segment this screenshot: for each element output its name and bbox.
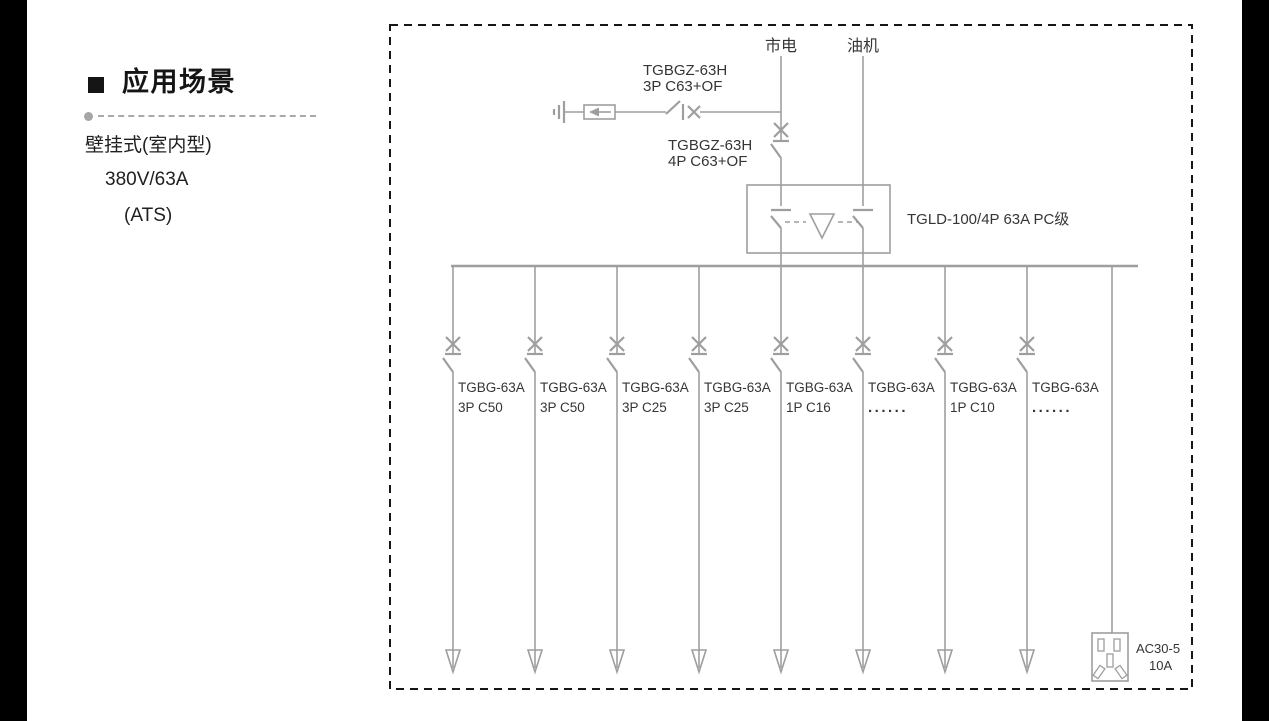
mains-feed: 市电 xyxy=(765,37,797,206)
switch-blade-icon xyxy=(666,101,680,114)
branch-model-label: TGBG-63A xyxy=(1032,380,1099,395)
surge-breaker-model-label: TGBGZ-63H xyxy=(643,62,727,79)
branch-spec-label: ...... xyxy=(1032,399,1072,416)
page: 应用场景 壁挂式(室内型) 380V/63A (ATS) 市电 油机 xyxy=(0,0,1269,721)
main-breaker-label: TGBGZ-63H 4P C63+OF xyxy=(668,137,752,170)
branch-model-label: TGBG-63A xyxy=(458,380,525,395)
branch-model-label: TGBG-63A xyxy=(786,380,853,395)
enclosure-border xyxy=(390,25,1192,689)
ats-label: TGLD-100/4P 63A PC级 xyxy=(907,211,1069,228)
feeder-branch: TGBG-63A3P C25 xyxy=(607,266,689,672)
feeder-branch: TGBG-63A3P C50 xyxy=(443,266,525,672)
branch-spec-label: 1P C10 xyxy=(950,400,995,415)
breaker-blade-icon xyxy=(771,144,781,158)
breaker-blade-icon xyxy=(607,358,617,372)
breaker-blade-icon xyxy=(853,358,863,372)
branch-model-label: TGBG-63A xyxy=(540,380,607,395)
feeder-branch: TGBG-63A...... xyxy=(1017,266,1099,672)
feeder-branch: TGBG-63A3P C25 xyxy=(689,266,771,672)
single-line-diagram: 市电 油机 xyxy=(0,0,1269,721)
socket-icon xyxy=(1092,633,1128,681)
mains-label: 市电 xyxy=(765,37,797,55)
surge-protection-branch: TGBGZ-63H 3P C63+OF xyxy=(554,62,781,123)
breaker-blade-icon xyxy=(771,358,781,372)
breaker-blade-icon xyxy=(1017,358,1027,372)
main-breaker-spec-label: 4P C63+OF xyxy=(668,153,747,170)
ats-left-blade-icon xyxy=(771,216,781,228)
ats-triangle-icon xyxy=(810,214,834,238)
branch-spec-label: 3P C25 xyxy=(622,400,667,415)
generator-feed: 油机 xyxy=(847,37,879,206)
branch-spec-label: ...... xyxy=(868,399,908,416)
breaker-blade-icon xyxy=(443,358,453,372)
ats-box xyxy=(747,185,890,253)
socket-branch: AC30-5 10A xyxy=(1092,266,1180,681)
feeder-branch: TGBG-63A...... xyxy=(853,266,935,672)
main-breaker-model-label: TGBGZ-63H xyxy=(668,137,752,154)
branch-model-label: TGBG-63A xyxy=(704,380,771,395)
feeder-branch: TGBG-63A3P C50 xyxy=(525,266,607,672)
breaker-blade-icon xyxy=(689,358,699,372)
socket-model-label: AC30-5 xyxy=(1136,641,1180,656)
branch-spec-label: 1P C16 xyxy=(786,400,831,415)
feeder-branch: TGBG-63A1P C16 xyxy=(771,266,853,672)
branch-spec-label: 3P C50 xyxy=(540,400,585,415)
breaker-blade-icon xyxy=(525,358,535,372)
feeder-branches: TGBG-63A3P C50TGBG-63A3P C50TGBG-63A3P C… xyxy=(443,266,1099,672)
feeder-branch: TGBG-63A1P C10 xyxy=(935,266,1017,672)
branch-model-label: TGBG-63A xyxy=(868,380,935,395)
generator-label: 油机 xyxy=(847,37,879,55)
breaker-blade-icon xyxy=(935,358,945,372)
socket-rating-label: 10A xyxy=(1149,658,1172,673)
branch-model-label: TGBG-63A xyxy=(950,380,1017,395)
branch-spec-label: 3P C25 xyxy=(704,400,749,415)
ground-icon xyxy=(554,101,564,123)
surge-arrester-icon xyxy=(584,105,615,119)
branch-model-label: TGBG-63A xyxy=(622,380,689,395)
branch-spec-label: 3P C50 xyxy=(458,400,503,415)
surge-breaker-spec-label: 3P C63+OF xyxy=(643,78,722,95)
ats-switch: TGLD-100/4P 63A PC级 xyxy=(747,185,1069,266)
